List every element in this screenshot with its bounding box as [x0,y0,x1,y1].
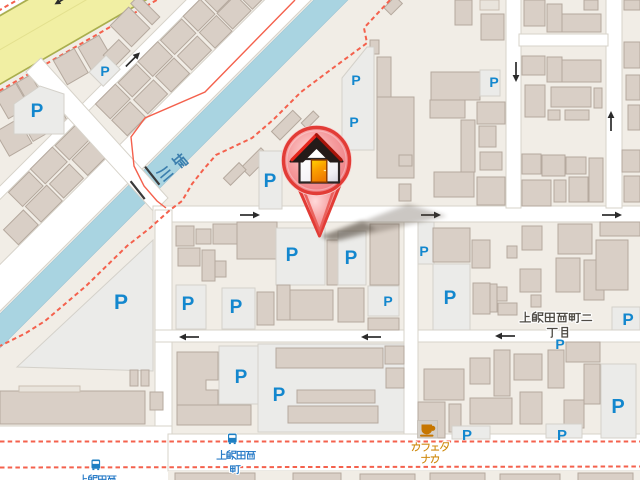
svg-text:P: P [100,63,109,79]
svg-text:P: P [489,74,498,90]
svg-text:P: P [462,427,472,444]
svg-text:P: P [557,427,567,444]
svg-text:P: P [31,101,44,122]
svg-text:P: P [383,293,392,309]
svg-text:P: P [286,245,299,266]
svg-text:P: P [264,171,277,192]
svg-text:P: P [182,294,195,315]
svg-text:P: P [419,243,428,259]
svg-text:P: P [349,114,358,130]
svg-text:P: P [611,396,624,418]
svg-text:P: P [345,248,358,269]
svg-text:P: P [444,288,457,309]
svg-text:P: P [273,385,286,406]
svg-text:P: P [235,367,248,388]
svg-text:P: P [114,291,128,314]
svg-text:P: P [351,72,360,88]
svg-text:P: P [622,310,633,329]
svg-text:P: P [230,297,243,318]
